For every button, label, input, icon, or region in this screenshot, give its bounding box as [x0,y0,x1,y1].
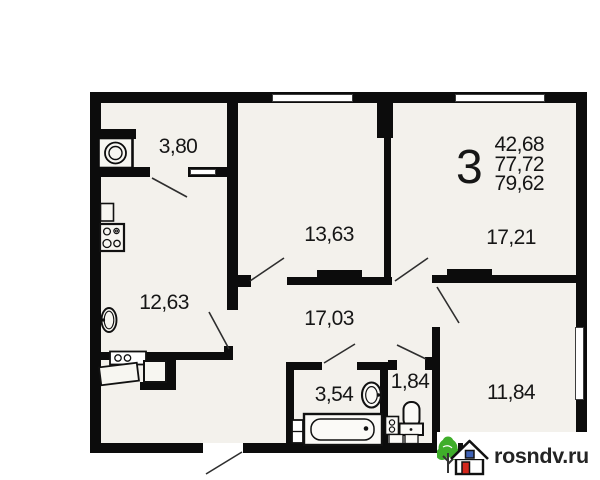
room-area-label-bathroom: 3,54 [315,383,353,407]
rosndv-logo: rosndv.ru [437,432,600,480]
window-bedroom-top [455,94,545,102]
hallway-floor-area [101,350,281,443]
wall-cabinet-bottom [140,382,176,390]
floorplan: 3,80 13,63 17,21 12,63 17,03 3,54 1,84 1… [0,0,600,480]
room-area-label-living: 13,63 [304,223,354,247]
wall-wc-stub-right [425,357,433,370]
wall-left [90,92,101,453]
window-bedroom-right [575,327,584,400]
apartment-summary: 3 42,68 77,72 79,62 [452,135,544,194]
wall-bedroom-left [432,327,440,443]
room-area-label-bedroom1: 17,21 [486,226,536,250]
wall-shaft-block-left [317,270,362,285]
wall-wc-stub-left [388,360,397,370]
window-livingroom [272,94,353,102]
room-area-label-wc: 1,84 [391,370,429,394]
wall-kitchen-divider [227,102,238,310]
logo-text: rosndv.ru [494,444,589,469]
wall-bathroom-top-right [357,362,380,370]
logo-house-tree-icon [437,435,491,477]
wall-kitchen-door-stub [224,346,233,360]
room-area-label-kitchen: 12,63 [139,291,189,315]
wall-bathroom-wc-divider [380,362,388,443]
wall-shaft-block-right [447,269,492,283]
wall-door-stub [238,275,251,287]
wall-washer-niche [90,129,136,139]
wall-top-stub [377,103,393,138]
rooms-count: 3 [456,144,483,192]
door-entrance [206,452,242,474]
window-storage-hatch [190,169,216,175]
wall-rooms-divider [384,136,391,285]
wall-bottom-left [90,443,203,453]
wall-bathroom-left [286,362,294,443]
room-area-label-hallway: 17,03 [304,307,354,331]
wall-bathroom-top-left [286,362,322,370]
wall-storage-bottom-a [101,167,150,177]
room-area-label-storage: 3,80 [159,135,197,159]
room-area-label-bedroom2: 11,84 [487,381,535,405]
